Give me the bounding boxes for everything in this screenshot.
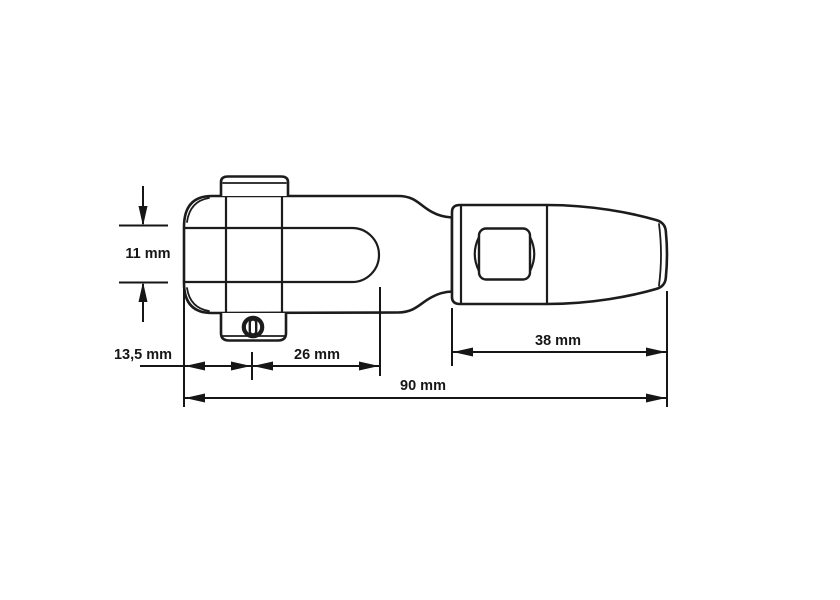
- dimension-label-90mm: 90 mm: [400, 378, 446, 394]
- swage-window: [479, 229, 530, 280]
- arrowhead-90-left: [185, 394, 205, 403]
- dimension-label-11mm: 11 mm: [125, 246, 170, 262]
- arrowhead-135-left: [185, 362, 205, 371]
- dimension-label-38mm: 38 mm: [535, 333, 581, 349]
- pin-ring-slot: [250, 320, 256, 335]
- dimension-body-length: 38 mm: [452, 291, 667, 407]
- arrowhead-down: [139, 206, 148, 226]
- dimension-jaw-height: 11 mm: [119, 186, 171, 322]
- arrowhead-38-left: [453, 348, 473, 357]
- arrowhead-26-left: [253, 362, 273, 371]
- arrowhead-38-right: [646, 348, 666, 357]
- dimension-label-135mm: 13,5 mm: [114, 347, 172, 363]
- technical-drawing-canvas: 11 mm 13,5 mm 26 mm 38 mm: [0, 0, 840, 600]
- clevis-body-outline: [184, 196, 452, 313]
- arrowhead-90-right: [646, 394, 666, 403]
- drawing-page: 11 mm 13,5 mm 26 mm 38 mm: [0, 0, 840, 600]
- dimension-label-26mm: 26 mm: [294, 347, 340, 363]
- dimension-overall-length: 90 mm: [184, 378, 667, 403]
- fork-terminal-part: [184, 177, 667, 341]
- arrowhead-26-right: [359, 362, 379, 371]
- arrowhead-135-right: [231, 362, 251, 371]
- clevis-pin-head: [221, 177, 288, 197]
- arrowhead-up: [139, 282, 148, 302]
